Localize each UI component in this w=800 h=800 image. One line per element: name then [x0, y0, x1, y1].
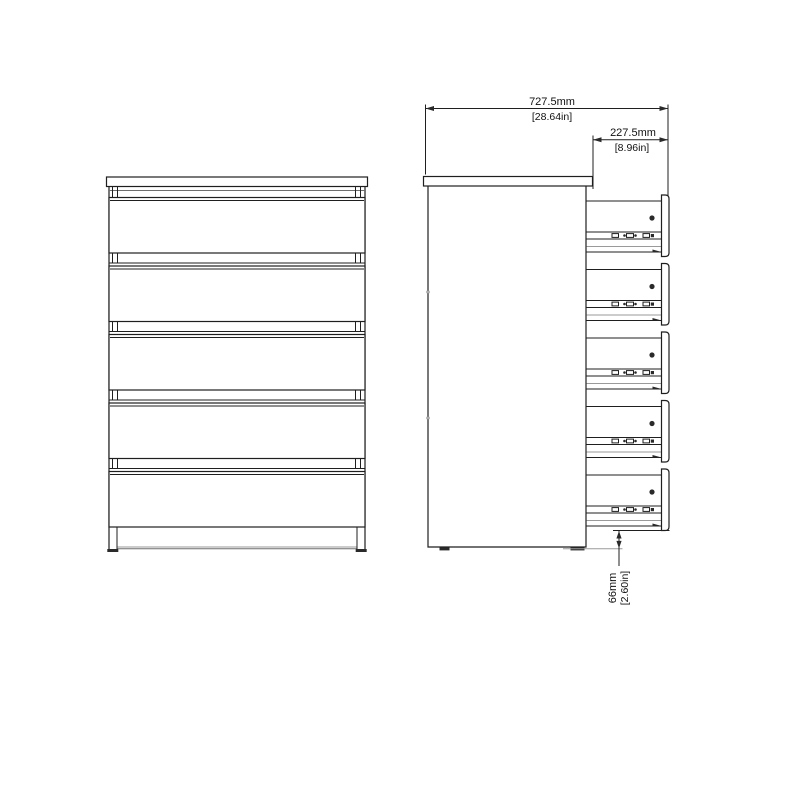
front-gap-3	[109, 390, 365, 400]
arrow-left	[426, 106, 435, 111]
front-drawer-3	[109, 335, 365, 391]
floor-clearance-metric: 66mm	[607, 573, 619, 604]
drawer-extension-metric: 227.5mm	[610, 127, 656, 139]
side-drawer-5	[587, 469, 670, 531]
arrow-right	[660, 137, 669, 142]
front-drawer-1	[109, 198, 365, 254]
arrow-left	[593, 137, 602, 142]
front-drawer-2	[109, 266, 365, 322]
side-drawer-4	[587, 401, 670, 463]
total-depth-metric: 727.5mm	[529, 96, 575, 108]
front-view	[107, 177, 368, 552]
side-drawer-3	[587, 332, 670, 394]
arrow-up	[616, 531, 621, 539]
front-right-foot-glide	[356, 549, 367, 552]
total-depth-imperial: [28.64in]	[532, 111, 572, 123]
dimension-floor-clearance: 66mm [2.60in]	[563, 531, 670, 606]
technical-drawing-page: 727.5mm [28.64in] 227.5mm [8.96in] 66mm …	[0, 0, 800, 800]
drawer-extension-imperial: [8.96in]	[615, 142, 650, 154]
front-left-foot-glide	[107, 549, 118, 552]
front-drawer-5	[109, 472, 365, 528]
side-drawer-1	[587, 195, 670, 257]
front-under-top-strip	[109, 187, 365, 198]
side-back-foot-glide	[440, 547, 450, 550]
front-gap-4	[109, 459, 365, 469]
front-gap-2	[109, 322, 365, 332]
front-top-panel	[107, 177, 368, 187]
front-base	[107, 527, 366, 552]
side-top-panel	[424, 177, 593, 187]
arrow-right	[660, 106, 669, 111]
side-drawer-2	[587, 264, 670, 326]
side-view	[424, 177, 670, 551]
chest-dimension-diagram: 727.5mm [28.64in] 227.5mm [8.96in] 66mm …	[0, 0, 800, 800]
dimension-drawer-extension: 227.5mm [8.96in]	[593, 127, 668, 189]
front-drawer-4	[109, 403, 365, 459]
side-cam-mark-lower	[426, 417, 430, 419]
arrow-down	[616, 541, 621, 549]
floor-clearance-imperial: [2.60in]	[619, 571, 631, 606]
side-cam-mark-upper	[426, 291, 430, 293]
side-body-outline	[428, 186, 586, 547]
front-gap-1	[109, 253, 365, 263]
